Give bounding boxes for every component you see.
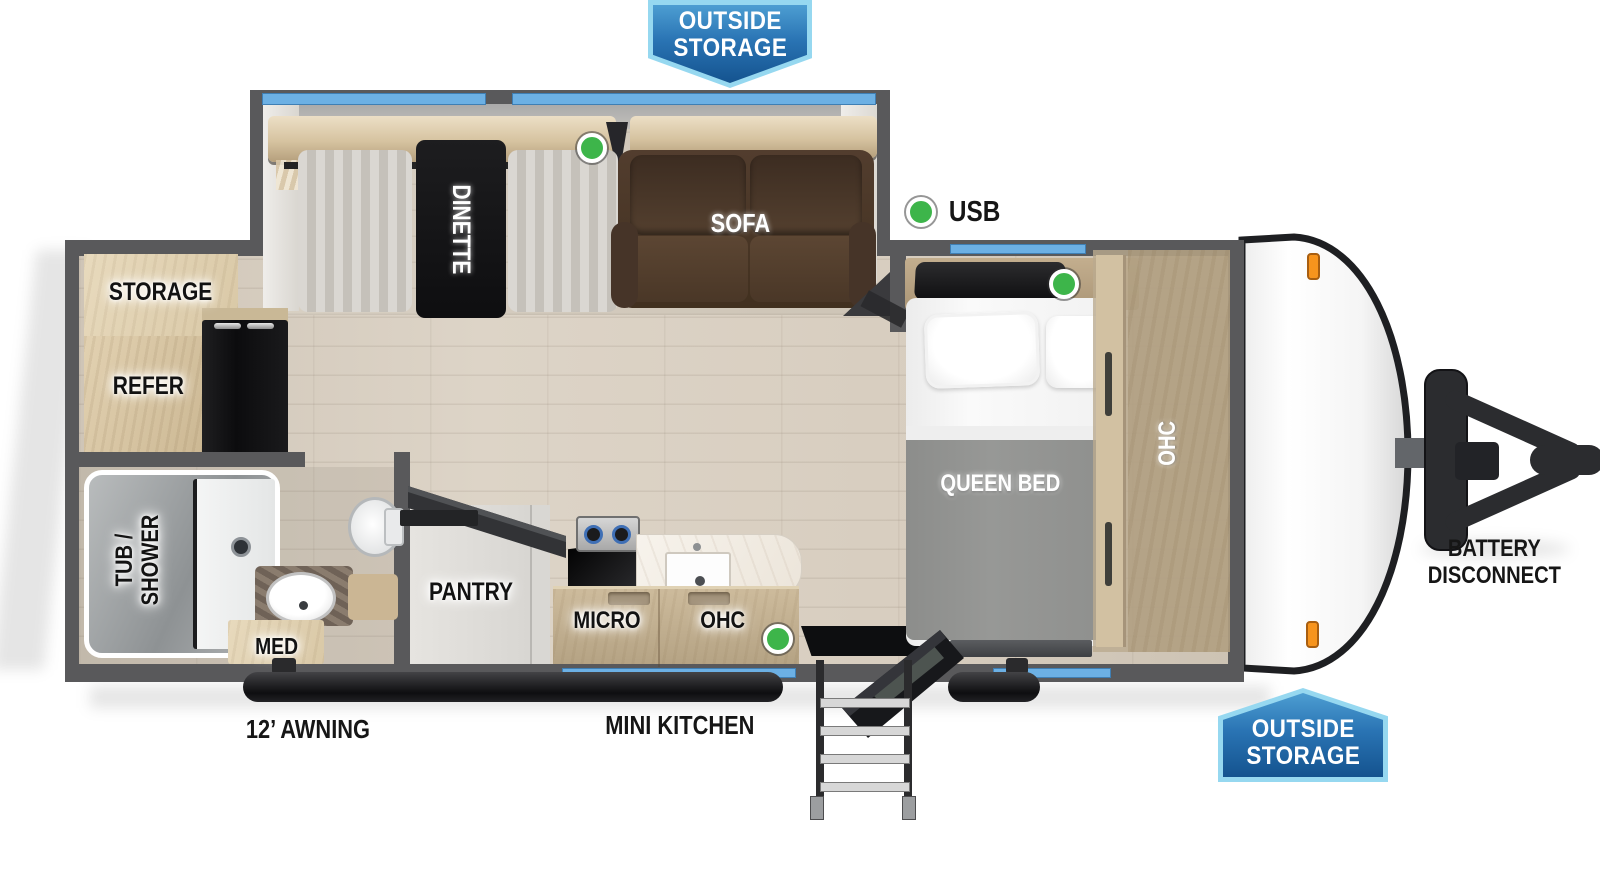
sofa-label: SOFA <box>675 208 805 238</box>
cabinet-handle-well <box>608 592 650 605</box>
battery-disconnect-label: BATTERY DISCONNECT <box>1412 534 1577 590</box>
step-foot <box>810 796 824 820</box>
sofa-seat-cushion-left <box>628 236 748 302</box>
step-rung <box>820 726 910 736</box>
rv-floorplan-canvas: BATTERY DISCONNECT DINETTE SOFA <box>0 0 1600 882</box>
burner <box>584 525 603 544</box>
cabinet-handle-well <box>688 592 730 605</box>
med-label: MED <box>232 632 322 660</box>
sink-drain <box>695 576 705 586</box>
cabinet-divider <box>658 589 660 667</box>
usb-indicator-dot <box>763 624 793 654</box>
fridge-handle <box>214 323 241 329</box>
fridge-handle <box>247 323 274 329</box>
pantry-label: PANTRY <box>404 578 538 606</box>
micro-label: MICRO <box>556 607 658 635</box>
stove-cooktop <box>576 516 640 552</box>
awning-tube-left <box>243 672 783 702</box>
shower-drain <box>231 537 251 557</box>
ohc-kitchen-label: OHC <box>688 607 758 635</box>
outside-storage-badge-bottom: OUTSIDE STORAGE <box>1218 688 1388 782</box>
bedroom-window-top <box>950 244 1086 254</box>
headboard-shelf <box>914 262 1066 300</box>
bath-wall-top <box>79 452 305 467</box>
ohc-bedroom-label: OHC <box>1154 398 1182 488</box>
marker-light-top <box>1308 254 1319 279</box>
slideout-wall-right <box>877 90 890 256</box>
wardrobe-handle <box>1105 522 1112 586</box>
usb-legend-label: USB <box>944 196 1005 228</box>
faucet <box>693 543 701 551</box>
refrigerator <box>202 320 288 458</box>
step-rung <box>820 782 910 792</box>
vanity-stool <box>348 574 398 620</box>
body-wall-right <box>1228 240 1244 682</box>
marker-light-bottom <box>1307 622 1318 647</box>
usb-indicator-dot <box>577 133 607 163</box>
mini-kitchen-label: MINI KITCHEN <box>600 710 760 740</box>
burner <box>612 525 631 544</box>
dinette-bench-right <box>508 150 618 312</box>
slideout-window-left <box>262 93 486 105</box>
usb-indicator-dot <box>1049 269 1079 299</box>
usb-legend: USB <box>906 196 1026 228</box>
refer-label: REFER <box>90 372 206 400</box>
step-rung <box>820 698 910 708</box>
badge-text: OUTSIDE STORAGE <box>648 0 812 88</box>
sink-drain <box>299 601 308 610</box>
usb-legend-dot <box>906 197 936 227</box>
slideout-wall-left <box>250 90 263 256</box>
step-rung <box>820 754 910 764</box>
wardrobe-door <box>1096 255 1126 647</box>
awning-label: 12’ AWNING <box>238 714 378 744</box>
storage-label: STORAGE <box>90 278 232 306</box>
desk-counter <box>396 478 576 568</box>
queen-bed-label: QUEEN BED <box>900 470 1100 498</box>
pillow <box>924 311 1041 389</box>
dinette-bench-left <box>298 150 412 312</box>
wardrobe-handle <box>1105 352 1112 416</box>
sofa-armrest-left <box>611 222 638 308</box>
tub-shower-label: TUB / SHOWER <box>110 484 166 636</box>
entry-steps <box>806 660 926 820</box>
body-wall-left <box>65 240 79 682</box>
step-foot <box>902 796 916 820</box>
slideout-window-right <box>512 93 876 105</box>
bath-sink <box>266 572 336 624</box>
badge-text: OUTSIDE STORAGE <box>1218 688 1388 782</box>
outside-storage-badge-top: OUTSIDE STORAGE <box>648 0 812 88</box>
dinette-label: DINETTE <box>446 141 476 317</box>
